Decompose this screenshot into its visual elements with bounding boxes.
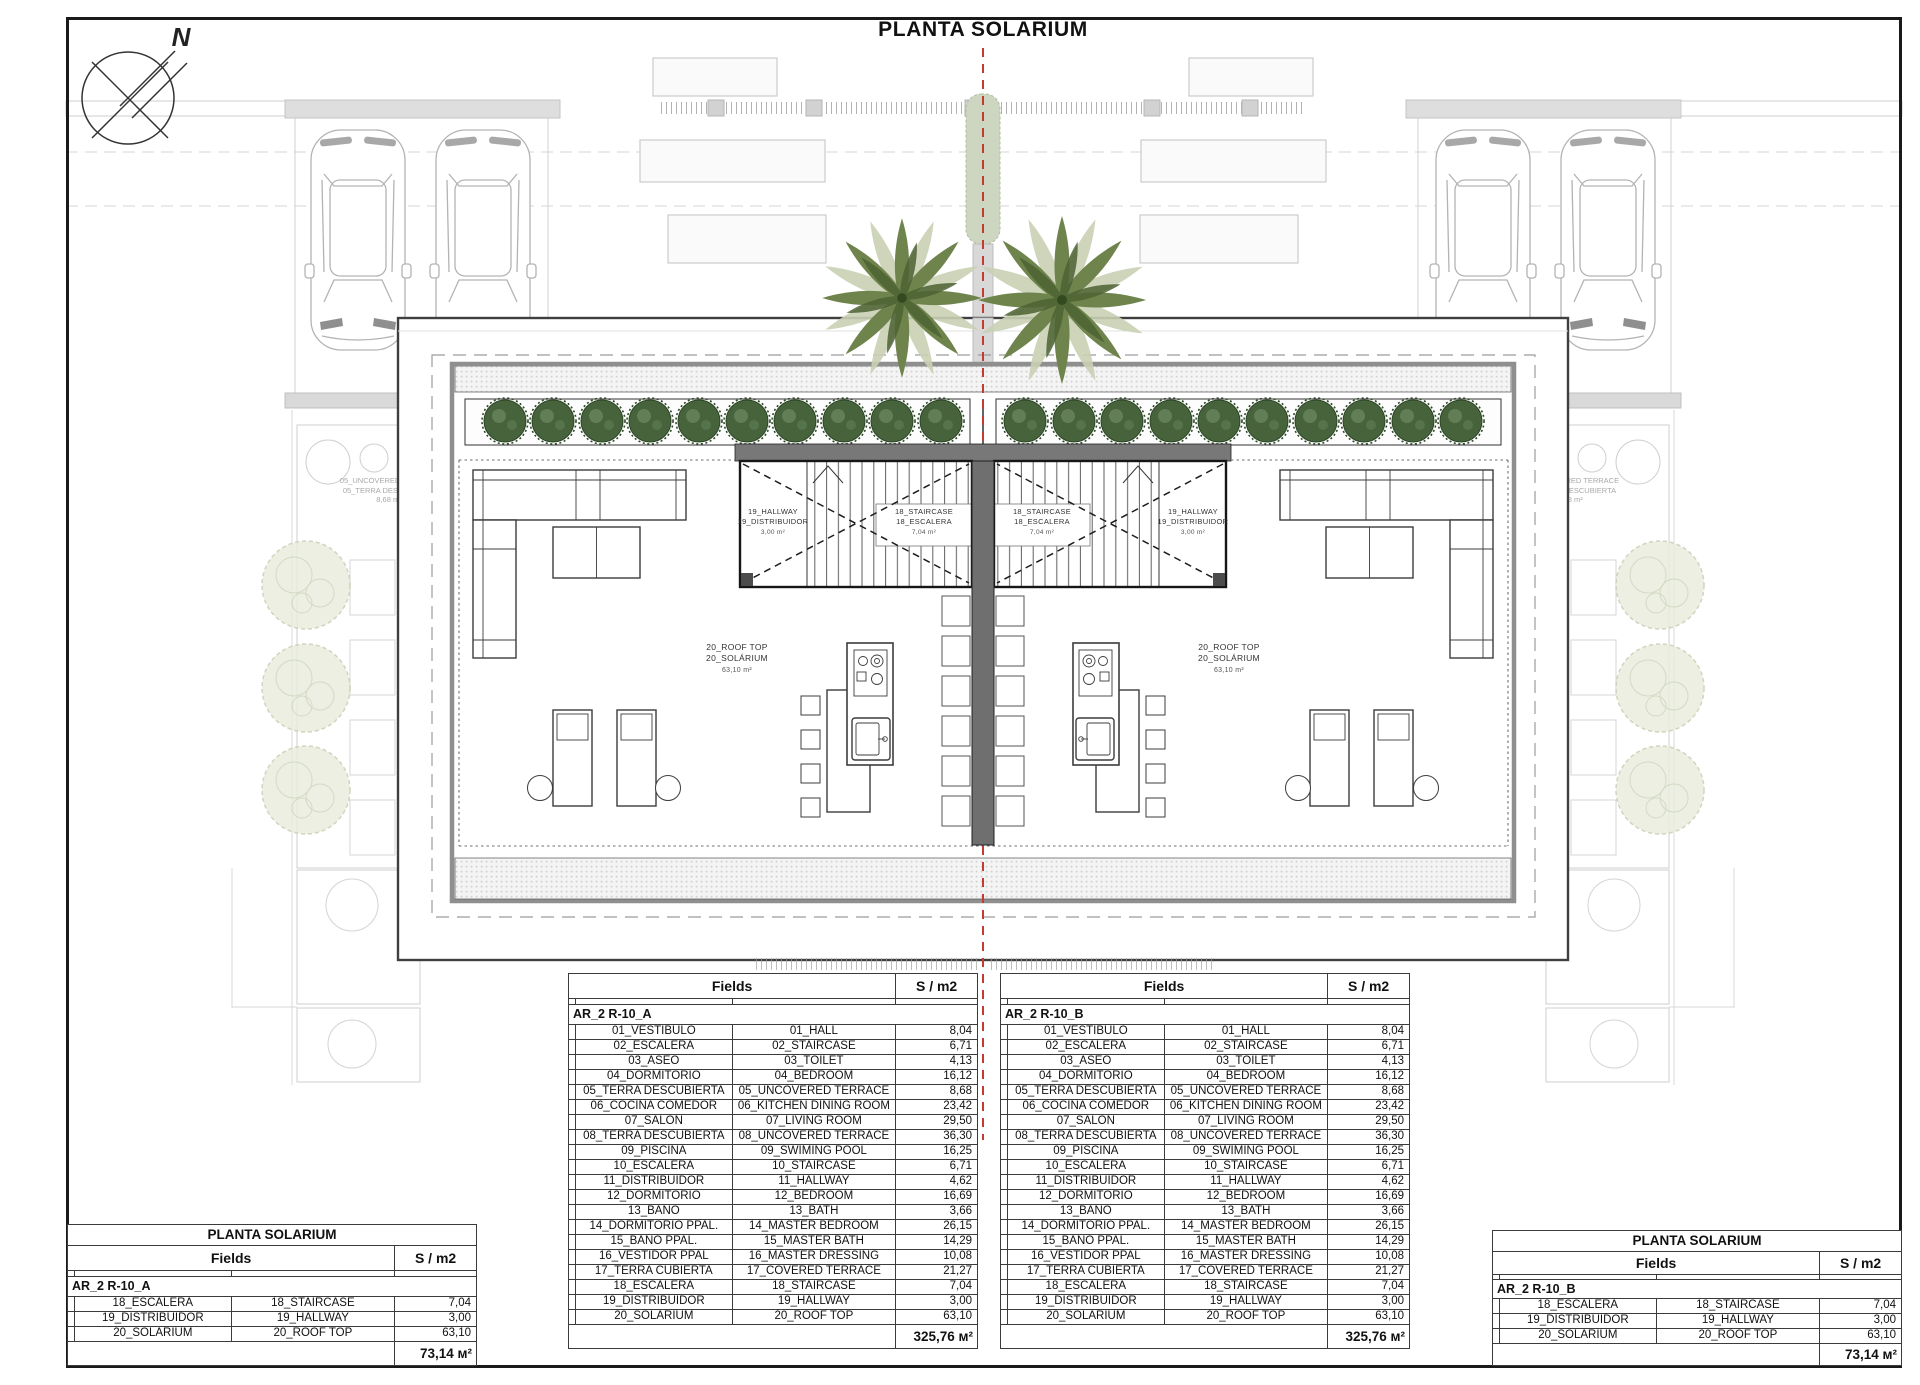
table-row: 11_DISTRIBUIDOR11_HALLWAY4,62 [1001, 1175, 1410, 1190]
left-rooftop-label: 20_SOLÁRIUM [706, 653, 768, 663]
left-staircase-label: 18_STAIRCASE [895, 507, 953, 516]
table-row: 09_PISCINA09_SWIMING POOL16,25 [569, 1145, 978, 1160]
palm-tree-left [822, 218, 982, 378]
table-row: 11_DISTRIBUIDOR11_HALLWAY4,62 [569, 1175, 978, 1190]
table-row: 17_TERRA CUBIERTA17_COVERED TERRACE21,27 [569, 1265, 978, 1280]
table-row: 05_TERRA DESCUBIERTA05_UNCOVERED TERRACE… [569, 1085, 978, 1100]
north-compass-icon: N [82, 22, 192, 144]
table-row: 16_VESTIDOR PPAL16_MASTER DRESSING10,08 [569, 1250, 978, 1265]
table-row: 14_DORMITORIO PPAL.14_MASTER BEDROOM26,1… [1001, 1220, 1410, 1235]
table-row: 01_VESTÍBULO01_HALL8,04 [1001, 1025, 1410, 1040]
left-rooftop-label: 20_ROOF TOP [706, 642, 768, 652]
table-row: 03_ASEO03_TOILET4,13 [569, 1055, 978, 1070]
north-label: N [172, 22, 192, 52]
right-staircase-label: 18_STAIRCASE [1013, 507, 1071, 516]
table-row: 09_PISCINA09_SWIMING POOL16,25 [1001, 1145, 1410, 1160]
table-row: 20_SOLÁRIUM20_ROOF TOP63,10 [569, 1310, 978, 1325]
left-staircase-area: 7,04 m² [912, 529, 937, 536]
table-row: 19_DISTRIBUIDOR19_HALLWAY3,00 [68, 1312, 477, 1327]
table-row: FieldsS / m2 [569, 974, 978, 999]
right-rooftop-area: 63,10 m² [1214, 667, 1244, 674]
table-row: 07_SALON07_LIVING ROOM29,50 [569, 1115, 978, 1130]
table-row: 07_SALON07_LIVING ROOM29,50 [1001, 1115, 1410, 1130]
table-row: 19_DISTRIBUIDOR19_HALLWAY3,00 [1493, 1314, 1902, 1329]
table-row: 12_DORMITORIO12_BEDROOM16,69 [569, 1190, 978, 1205]
table-row: FieldsS / m2 [1001, 974, 1410, 999]
table-row: 02_ESCALERA02_STAIRCASE6,71 [569, 1040, 978, 1055]
table-row: 06_COCINA COMEDOR06_KITCHEN DINING ROOM2… [1001, 1100, 1410, 1115]
table-row: 15_BAÑO PPAL.15_MASTER BATH14,29 [569, 1235, 978, 1250]
table-row: 20_SOLÁRIUM20_ROOF TOP63,10 [68, 1327, 477, 1342]
area-table-unit-b: FieldsS / m2AR_2 R-10_B01_VESTÍBULO01_HA… [1000, 973, 1410, 1349]
table-row: 18_ESCALERA18_STAIRCASE7,04 [569, 1280, 978, 1295]
table-row: 08_TERRA DESCUBIERTA08_UNCOVERED TERRACE… [1001, 1130, 1410, 1145]
left-rooftop-area: 63,10 m² [722, 667, 752, 674]
table-row: AR_2 R-10_A [68, 1277, 477, 1297]
right-staircase-label: 18_ESCALERA [1014, 517, 1070, 526]
table-row: 18_ESCALERA18_STAIRCASE7,04 [68, 1297, 477, 1312]
table-row: 02_ESCALERA02_STAIRCASE6,71 [1001, 1040, 1410, 1055]
table-row: 17_TERRA CUBIERTA17_COVERED TERRACE21,27 [1001, 1265, 1410, 1280]
table-row: 13_BAÑO13_BATH3,66 [1001, 1205, 1410, 1220]
table-row: 01_VESTÍBULO01_HALL8,04 [569, 1025, 978, 1040]
table-row: 18_ESCALERA18_STAIRCASE7,04 [1493, 1299, 1902, 1314]
right-rooftop-label: 20_ROOF TOP [1198, 642, 1260, 652]
table-row: 325,76 м² [569, 1325, 978, 1349]
table-row: 325,76 м² [1001, 1325, 1410, 1349]
table-row: 10_ESCALERA10_STAIRCASE6,71 [569, 1160, 978, 1175]
left-hallway-area: 3,00 m² [761, 529, 786, 536]
table-row: 14_DORMITORIO PPAL.14_MASTER BEDROOM26,1… [569, 1220, 978, 1235]
solarium-table-unit-b: PLANTA SOLARIUMFieldsS / m2AR_2 R-10_B18… [1492, 1230, 1902, 1366]
table-row: 20_SOLÁRIUM20_ROOF TOP63,10 [1001, 1310, 1410, 1325]
left-hallway-label: 19_HALLWAY [748, 507, 798, 516]
left-staircase-label: 18_ESCALERA [896, 517, 952, 526]
table-row: 20_SOLÁRIUM20_ROOF TOP63,10 [1493, 1329, 1902, 1344]
table-row: PLANTA SOLARIUM [1493, 1231, 1902, 1252]
table-row: 73,14 м² [68, 1342, 477, 1366]
left-hallway-label: 19_DISTRIBUIDOR [738, 517, 809, 526]
page-title: PLANTA SOLARIUM [878, 18, 1088, 42]
area-table-unit-a: FieldsS / m2AR_2 R-10_A01_VESTÍBULO01_HA… [568, 973, 978, 1349]
table-row: 06_COCINA COMEDOR06_KITCHEN DINING ROOM2… [569, 1100, 978, 1115]
table-row: 12_DORMITORIO12_BEDROOM16,69 [1001, 1190, 1410, 1205]
table-row: 18_ESCALERA18_STAIRCASE7,04 [1001, 1280, 1410, 1295]
right-staircase-area: 7,04 m² [1030, 529, 1055, 536]
table-row: 10_ESCALERA10_STAIRCASE6,71 [1001, 1160, 1410, 1175]
right-rooftop-label: 20_SOLÁRIUM [1198, 653, 1260, 663]
table-row: 15_BAÑO PPAL.15_MASTER BATH14,29 [1001, 1235, 1410, 1250]
table-row: 08_TERRA DESCUBIERTA08_UNCOVERED TERRACE… [569, 1130, 978, 1145]
table-row: 04_DORMITORIO04_BEDROOM16,12 [1001, 1070, 1410, 1085]
right-hallway-label: 19_HALLWAY [1168, 507, 1218, 516]
table-row: AR_2 R-10_B [1001, 1005, 1410, 1025]
table-row: 05_TERRA DESCUBIERTA05_UNCOVERED TERRACE… [1001, 1085, 1410, 1100]
table-row: 73,14 м² [1493, 1344, 1902, 1366]
table-row: 13_BAÑO13_BATH3,66 [569, 1205, 978, 1220]
right-hallway-area: 3,00 m² [1181, 529, 1206, 536]
table-row: 03_ASEO03_TOILET4,13 [1001, 1055, 1410, 1070]
palm-tree-right [978, 216, 1146, 384]
solarium-table-unit-a: PLANTA SOLARIUMFieldsS / m2AR_2 R-10_A18… [67, 1224, 477, 1366]
table-row: AR_2 R-10_A [569, 1005, 978, 1025]
table-row: 04_DORMITORIO04_BEDROOM16,12 [569, 1070, 978, 1085]
table-row: FieldsS / m2 [68, 1246, 477, 1271]
table-row: 19_DISTRIBUIDOR19_HALLWAY3,00 [1001, 1295, 1410, 1310]
table-row: FieldsS / m2 [1493, 1252, 1902, 1275]
table-row: 16_VESTIDOR PPAL16_MASTER DRESSING10,08 [1001, 1250, 1410, 1265]
table-row: PLANTA SOLARIUM [68, 1225, 477, 1246]
right-hallway-label: 19_DISTRIBUIDOR [1158, 517, 1229, 526]
table-row: 19_DISTRIBUIDOR19_HALLWAY3,00 [569, 1295, 978, 1310]
table-row: AR_2 R-10_B [1493, 1280, 1902, 1299]
